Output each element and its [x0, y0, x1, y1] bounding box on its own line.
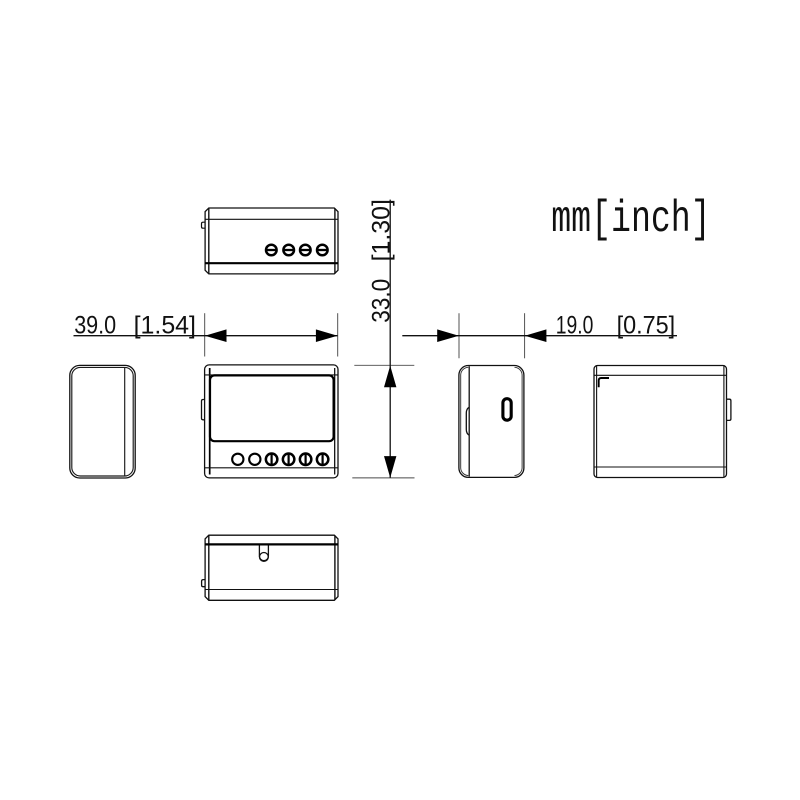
svg-text:[1.54]: [1.54]: [134, 312, 196, 339]
svg-text:39.0: 39.0: [74, 312, 116, 339]
svg-text:33.0: 33.0: [368, 279, 395, 323]
svg-text:[0.75]: [0.75]: [617, 312, 676, 339]
svg-text:19.0: 19.0: [556, 312, 594, 339]
svg-text:[1.30]: [1.30]: [368, 199, 395, 261]
svg-text:mm[inch]: mm[inch]: [551, 195, 711, 245]
